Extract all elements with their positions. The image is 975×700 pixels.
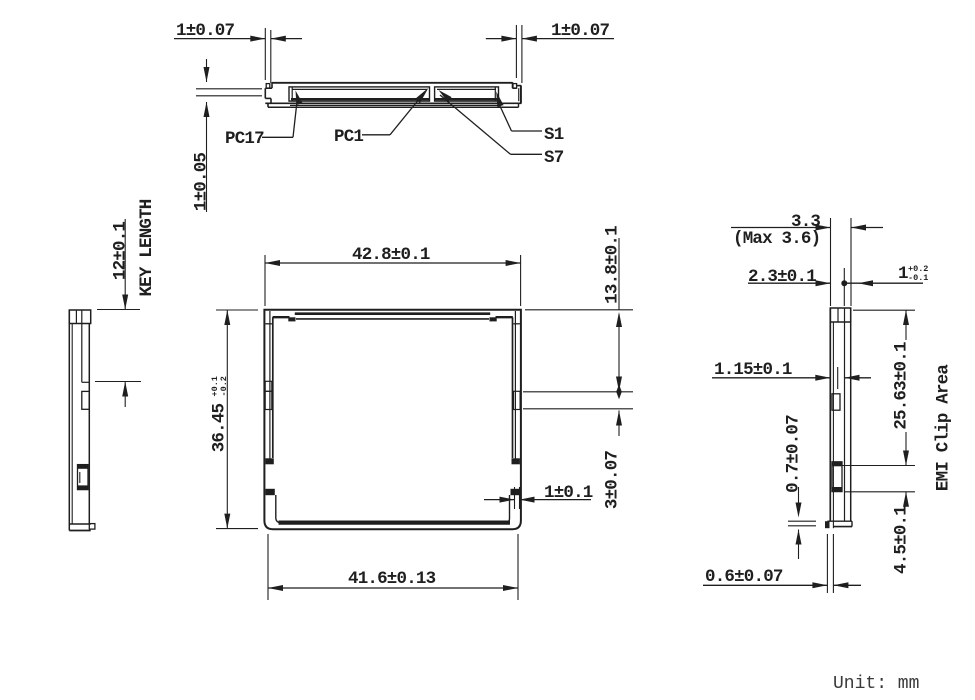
svg-text:EMI Clip Area: EMI Clip Area	[934, 364, 954, 491]
svg-text:S7: S7	[544, 148, 564, 168]
svg-text:PC1: PC1	[334, 127, 363, 147]
svg-text:41.6±0.13: 41.6±0.13	[348, 569, 436, 589]
svg-text:S1: S1	[544, 125, 564, 145]
svg-text:KEY LENGTH: KEY LENGTH	[137, 199, 157, 296]
svg-text:2.3±0.1: 2.3±0.1	[748, 267, 816, 287]
svg-text:36.45: 36.45	[210, 403, 230, 452]
svg-text:(Max 3.6): (Max 3.6)	[733, 229, 820, 249]
svg-text:12±0.1: 12±0.1	[110, 222, 130, 281]
svg-text:4.5±0.1: 4.5±0.1	[892, 506, 912, 574]
svg-text:3±0.07: 3±0.07	[603, 451, 623, 510]
svg-text:25.63±0.1: 25.63±0.1	[892, 342, 912, 430]
svg-text:0.6±0.07: 0.6±0.07	[705, 567, 783, 587]
svg-text:0.7±0.07: 0.7±0.07	[784, 415, 804, 493]
svg-text:Unit: mm: Unit: mm	[833, 674, 919, 694]
svg-text:1: 1	[898, 264, 908, 284]
svg-text:1.15±0.1: 1.15±0.1	[714, 360, 792, 380]
svg-text:42.8±0.1: 42.8±0.1	[352, 245, 430, 265]
svg-text:-0.1: -0.1	[908, 273, 928, 283]
svg-text:PC17: PC17	[225, 129, 264, 149]
svg-text:1±0.05: 1±0.05	[191, 153, 211, 212]
